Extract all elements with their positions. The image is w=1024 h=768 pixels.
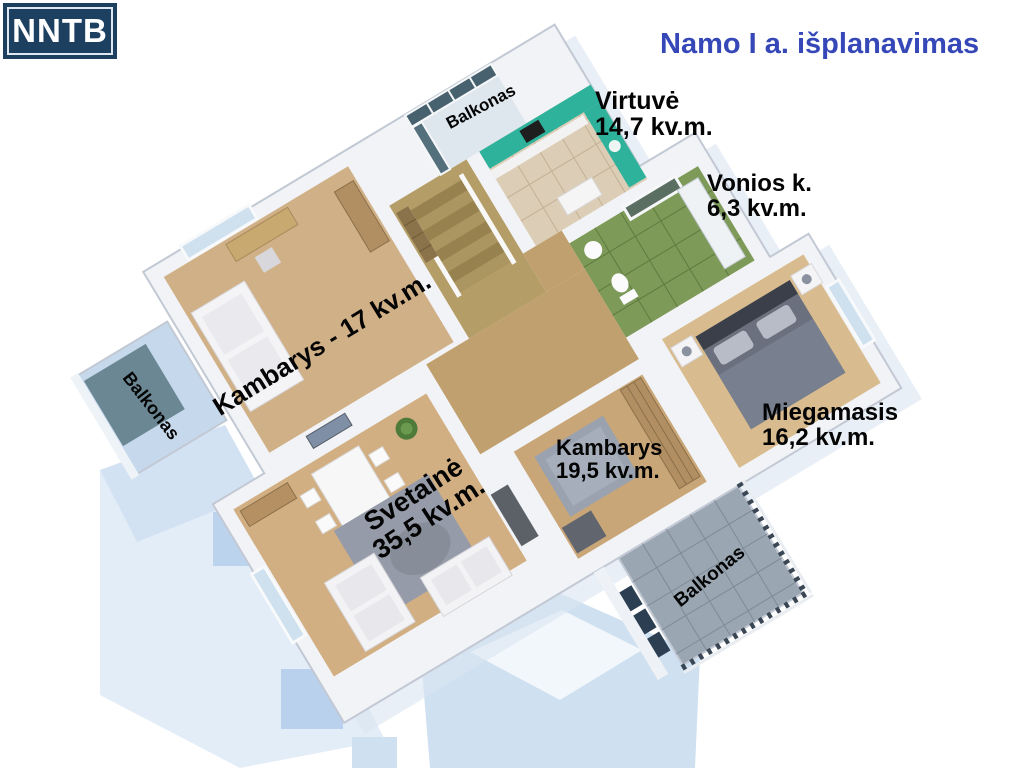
- room-area: 6,3 kv.m.: [707, 197, 812, 222]
- label-miegamasis: Miegamasis 16,2 kv.m.: [762, 401, 898, 451]
- page-title: Namo I a. išplanavimas: [660, 28, 1020, 61]
- room-area: 19,5 kv.m.: [556, 460, 662, 483]
- label-vonios: Vonios k. 6,3 kv.m.: [707, 172, 812, 222]
- room-area: 16,2 kv.m.: [762, 426, 898, 451]
- nntb-logo: NNTB: [3, 3, 117, 59]
- room-name: Miegamasis: [762, 401, 898, 426]
- nntb-logo-text: NNTB: [12, 12, 108, 50]
- floor-plan-rendering: [0, 0, 1024, 768]
- room-name: Kambarys: [556, 437, 662, 460]
- room-area: 14,7 kv.m.: [595, 114, 713, 140]
- label-virtuve: Virtuvė 14,7 kv.m.: [595, 88, 713, 140]
- nntb-logo-frame: NNTB: [7, 7, 113, 55]
- room-name: Vonios k.: [707, 172, 812, 197]
- floorplan-page: Balkonas Virtuvė 14,7 kv.m. Vonios k. 6,…: [0, 0, 1024, 768]
- label-kambarys19: Kambarys 19,5 kv.m.: [556, 437, 662, 483]
- room-name: Virtuvė: [595, 88, 713, 114]
